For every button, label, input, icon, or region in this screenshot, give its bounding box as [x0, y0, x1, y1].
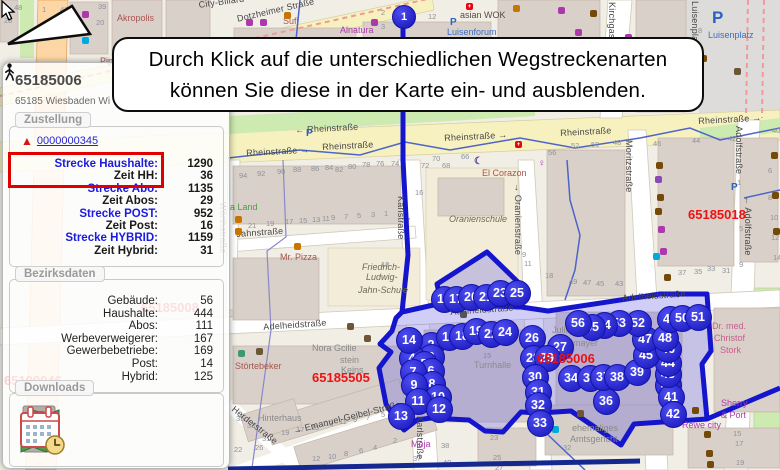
- map-application: 4814339282023128694929088868482807876742…: [0, 0, 780, 470]
- district-stat-row: Werbeverweigerer:167: [13, 333, 213, 346]
- district-address: 65185 Wiesbaden Wi: [15, 96, 110, 107]
- district-number-label: 65185006: [537, 351, 595, 366]
- district-stat-row: Haushalte:444: [13, 308, 213, 321]
- callout-line-1: Durch Klick auf die unterschiedlichen We…: [114, 44, 702, 75]
- district-number-label: 65185018: [688, 207, 746, 222]
- downloads-section-label: Downloads: [15, 380, 94, 396]
- route-type-row[interactable]: Zeit Post:16: [13, 220, 213, 232]
- tour-number-link[interactable]: 0000000345: [37, 135, 98, 147]
- mouse-cursor: [0, 0, 20, 22]
- route-type-row[interactable]: Strecke POST:952: [13, 208, 213, 220]
- district-stat-rows: Gebäude:56Haushalte:444Abos:111Werbeverw…: [13, 295, 213, 383]
- route-type-row[interactable]: Zeit Abos:29: [13, 195, 213, 207]
- bezirksdaten-section-label: Bezirksdaten: [15, 266, 105, 282]
- warning-triangle-icon: ▲: [21, 135, 33, 147]
- district-number-label: 65185505: [312, 370, 370, 385]
- district-stat-row: Abos:111: [13, 320, 213, 333]
- district-stat-row: Gebäude:56: [13, 295, 213, 308]
- pedestrian-icon: [3, 63, 16, 81]
- route-type-row[interactable]: Strecke HYBRID:1159: [13, 232, 213, 244]
- calendar-export-icon[interactable]: [19, 405, 65, 457]
- district-info-panel: 65185006 65185 Wiesbaden Wi Zustellung ▲…: [2, 62, 230, 469]
- instruction-callout: Durch Klick auf die unterschiedlichen We…: [112, 37, 704, 112]
- zustellung-section-label: Zustellung: [15, 112, 91, 128]
- highlight-annotation-rect: [8, 152, 164, 188]
- callout-line-2: können Sie diese in der Karte ein- und a…: [114, 75, 702, 106]
- district-stat-row: Post:14: [13, 358, 213, 371]
- route-type-row[interactable]: Zeit Hybrid:31: [13, 245, 213, 257]
- district-id-title: 65185006: [15, 72, 82, 89]
- district-stat-row: Gewerbebetriebe:169: [13, 345, 213, 358]
